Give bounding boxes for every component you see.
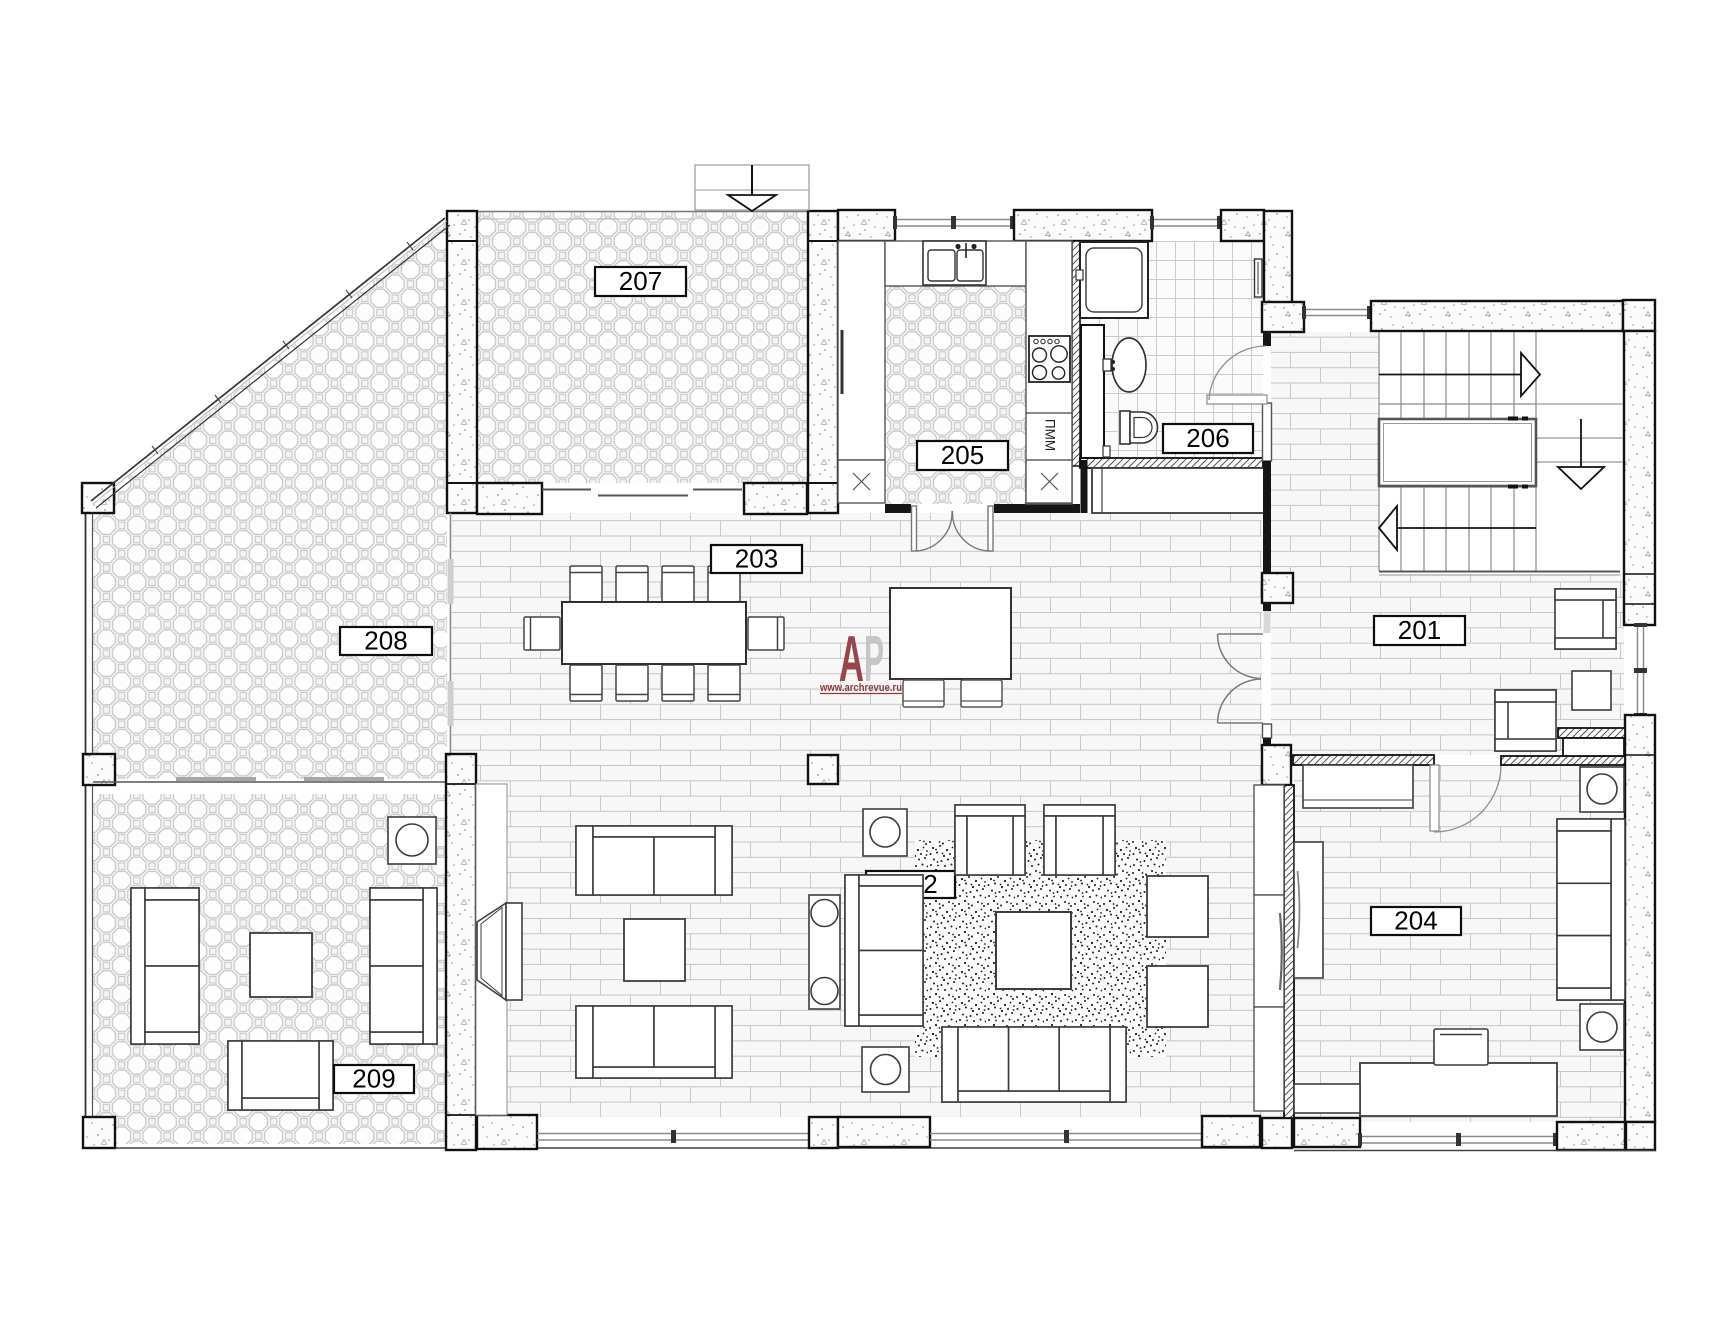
svg-text:206: 206: [1186, 423, 1229, 453]
svg-text:203: 203: [735, 544, 778, 574]
svg-text:208: 208: [364, 626, 407, 656]
svg-text:209: 209: [352, 1064, 395, 1094]
svg-text:www.archrevue.ru: www.archrevue.ru: [819, 682, 902, 694]
svg-text:201: 201: [1398, 615, 1441, 645]
svg-text:ПММ: ПММ: [1042, 419, 1057, 451]
svg-text:207: 207: [619, 266, 662, 296]
svg-text:204: 204: [1394, 906, 1437, 936]
svg-text:205: 205: [941, 440, 984, 470]
